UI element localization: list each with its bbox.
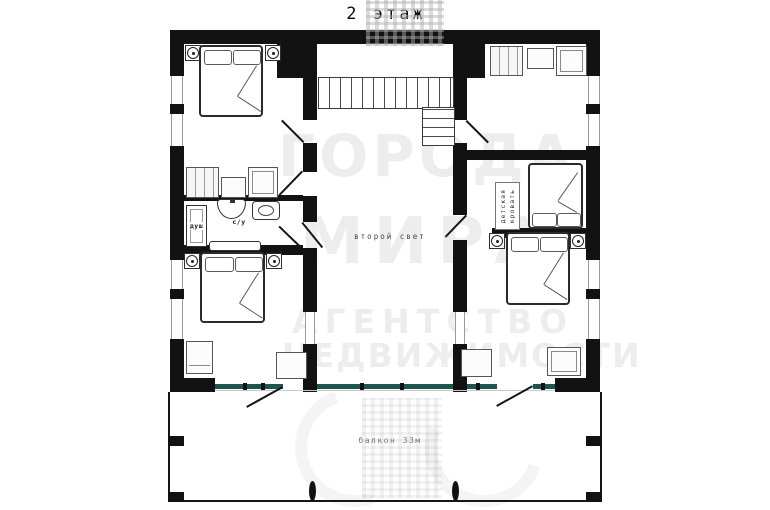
pillow — [532, 213, 557, 227]
lamp-icon — [491, 235, 503, 247]
wall-segment — [303, 196, 317, 222]
balcony-outline — [168, 392, 170, 502]
window-mullion — [170, 104, 184, 114]
floor-plan-page: ГОРОДА МИРА АГЕНТСТВО НЕДВИЖИМОСТИ 2 эта… — [0, 0, 770, 510]
wardrobe-closet — [527, 48, 554, 69]
blanket-fold — [544, 252, 564, 284]
glazing-mullion — [261, 383, 265, 390]
wc-label: с/у — [224, 218, 254, 226]
interior-window — [455, 312, 465, 344]
wall-right — [586, 146, 600, 260]
wardrobe-closet — [248, 167, 278, 198]
balcony-pier — [168, 436, 184, 446]
balcony-pier — [586, 492, 602, 502]
window-opening — [171, 76, 183, 104]
pillow — [204, 50, 232, 65]
glazing-sill-line — [215, 390, 555, 391]
balcony-pier — [586, 436, 602, 446]
pillow — [511, 237, 539, 252]
kids-bed-label: детская — [499, 189, 507, 223]
glazing-mullion — [243, 383, 247, 390]
window-opening — [171, 260, 183, 289]
glazing-mullion — [541, 383, 545, 390]
blanket-fold — [237, 65, 257, 96]
glazed-wall — [467, 384, 497, 389]
balcony-outline — [168, 500, 602, 502]
balcony-outline — [600, 392, 602, 502]
cabinet — [547, 347, 581, 376]
window-opening — [171, 114, 183, 146]
lamp-icon — [187, 47, 199, 59]
wall-segment — [453, 44, 485, 78]
wall-segment — [555, 378, 600, 392]
stairs-lower-run — [422, 107, 455, 146]
window-mullion — [170, 289, 184, 299]
pillow — [233, 50, 261, 65]
wardrobe-closet — [221, 177, 246, 198]
blanket-fold — [239, 303, 262, 319]
blanket-fold — [237, 96, 261, 112]
window-opening — [588, 299, 600, 339]
balcony-baluster — [452, 481, 459, 501]
nightstand — [266, 253, 282, 269]
wardrobe-closet — [186, 167, 219, 198]
window-mullion — [586, 289, 600, 299]
shower-label: душ — [190, 222, 203, 230]
window-opening — [171, 299, 183, 339]
lamp-icon — [267, 47, 279, 59]
kids-bed-label: кровать — [508, 189, 516, 223]
balcony-pier — [168, 492, 184, 502]
wall-segment — [303, 78, 317, 120]
kids-bed-label-box: детская кровать — [495, 182, 520, 230]
wall-segment — [453, 78, 467, 120]
glazing-mullion — [400, 383, 404, 390]
wall-segment — [453, 240, 467, 312]
wall-left — [170, 146, 184, 260]
window-opening — [588, 260, 600, 289]
wall-segment — [453, 143, 467, 215]
wardrobe-closet — [556, 46, 587, 76]
window-mullion — [586, 104, 600, 114]
sink — [217, 199, 246, 219]
blanket-fold — [558, 201, 578, 213]
shower-stall: душ — [186, 205, 207, 247]
wall-segment — [303, 248, 317, 312]
watermark-building-icon — [366, 0, 444, 46]
balcony-baluster — [309, 481, 316, 501]
cabinet — [186, 341, 213, 374]
window-opening — [588, 114, 600, 146]
wall-segment — [303, 143, 317, 172]
glazing-mullion — [360, 383, 364, 390]
lamp-icon — [572, 235, 584, 247]
glazed-wall — [215, 384, 283, 389]
wall-segment — [277, 44, 317, 78]
pillow — [540, 237, 568, 252]
wardrobe-closet — [490, 46, 523, 76]
balcony-label: балкон 33м — [335, 436, 445, 445]
nightstand — [489, 233, 505, 249]
cabinet — [276, 352, 307, 379]
blanket-fold — [543, 284, 567, 300]
nightstand — [265, 45, 281, 61]
window-opening — [588, 76, 600, 104]
bed-double — [199, 45, 263, 117]
second-light-label: второй свет — [330, 232, 450, 241]
wall-right — [586, 30, 600, 76]
wall-left — [170, 30, 184, 76]
interior-window — [305, 312, 315, 344]
stairs-upper-run — [318, 77, 454, 109]
glazed-wall — [317, 384, 453, 389]
blanket-fold — [239, 272, 259, 303]
pillow — [205, 257, 234, 272]
wall-segment — [170, 378, 215, 392]
wall-room3-room4 — [467, 150, 586, 160]
pillow — [235, 257, 263, 272]
bed-kids — [528, 163, 583, 229]
lamp-icon — [268, 255, 280, 267]
cabinet — [461, 349, 492, 377]
lamp-icon — [186, 255, 198, 267]
bed-double — [506, 232, 570, 305]
pillow — [557, 213, 581, 227]
nightstand — [184, 253, 200, 269]
glazing-mullion — [476, 383, 480, 390]
bed-double — [200, 252, 265, 323]
blanket-fold — [558, 172, 578, 200]
towel-radiator — [209, 241, 261, 251]
nightstand — [570, 233, 586, 249]
toilet — [252, 201, 280, 220]
